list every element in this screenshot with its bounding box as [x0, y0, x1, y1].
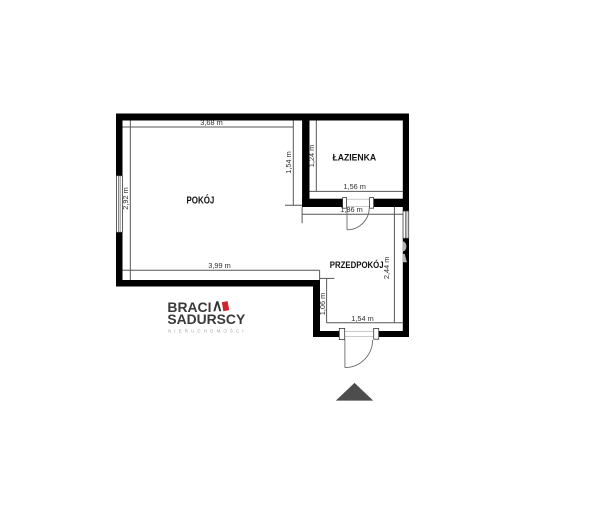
svg-text:1,56 m: 1,56 m [343, 182, 366, 191]
svg-text:SADURSCY: SADURSCY [167, 312, 245, 327]
svg-text:2,44 m: 2,44 m [382, 257, 391, 280]
svg-text:3,68 m: 3,68 m [200, 118, 223, 127]
svg-text:1,24 m: 1,24 m [307, 145, 316, 168]
svg-text:1,86 m: 1,86 m [340, 205, 363, 214]
svg-text:PRZEDPOKÓJ: PRZEDPOKÓJ [330, 259, 384, 270]
svg-text:ŁAZIENKA: ŁAZIENKA [332, 152, 376, 163]
svg-text:2,92 m: 2,92 m [121, 187, 130, 210]
svg-text:1,54 m: 1,54 m [284, 151, 293, 174]
svg-text:POKÓJ: POKÓJ [187, 193, 215, 206]
svg-text:1,06 m: 1,06 m [318, 293, 327, 316]
svg-text:3,99 m: 3,99 m [208, 261, 231, 270]
svg-text:1,54 m: 1,54 m [351, 314, 374, 323]
svg-text:NIERUCHOMOŚCI: NIERUCHOMOŚCI [168, 329, 244, 334]
